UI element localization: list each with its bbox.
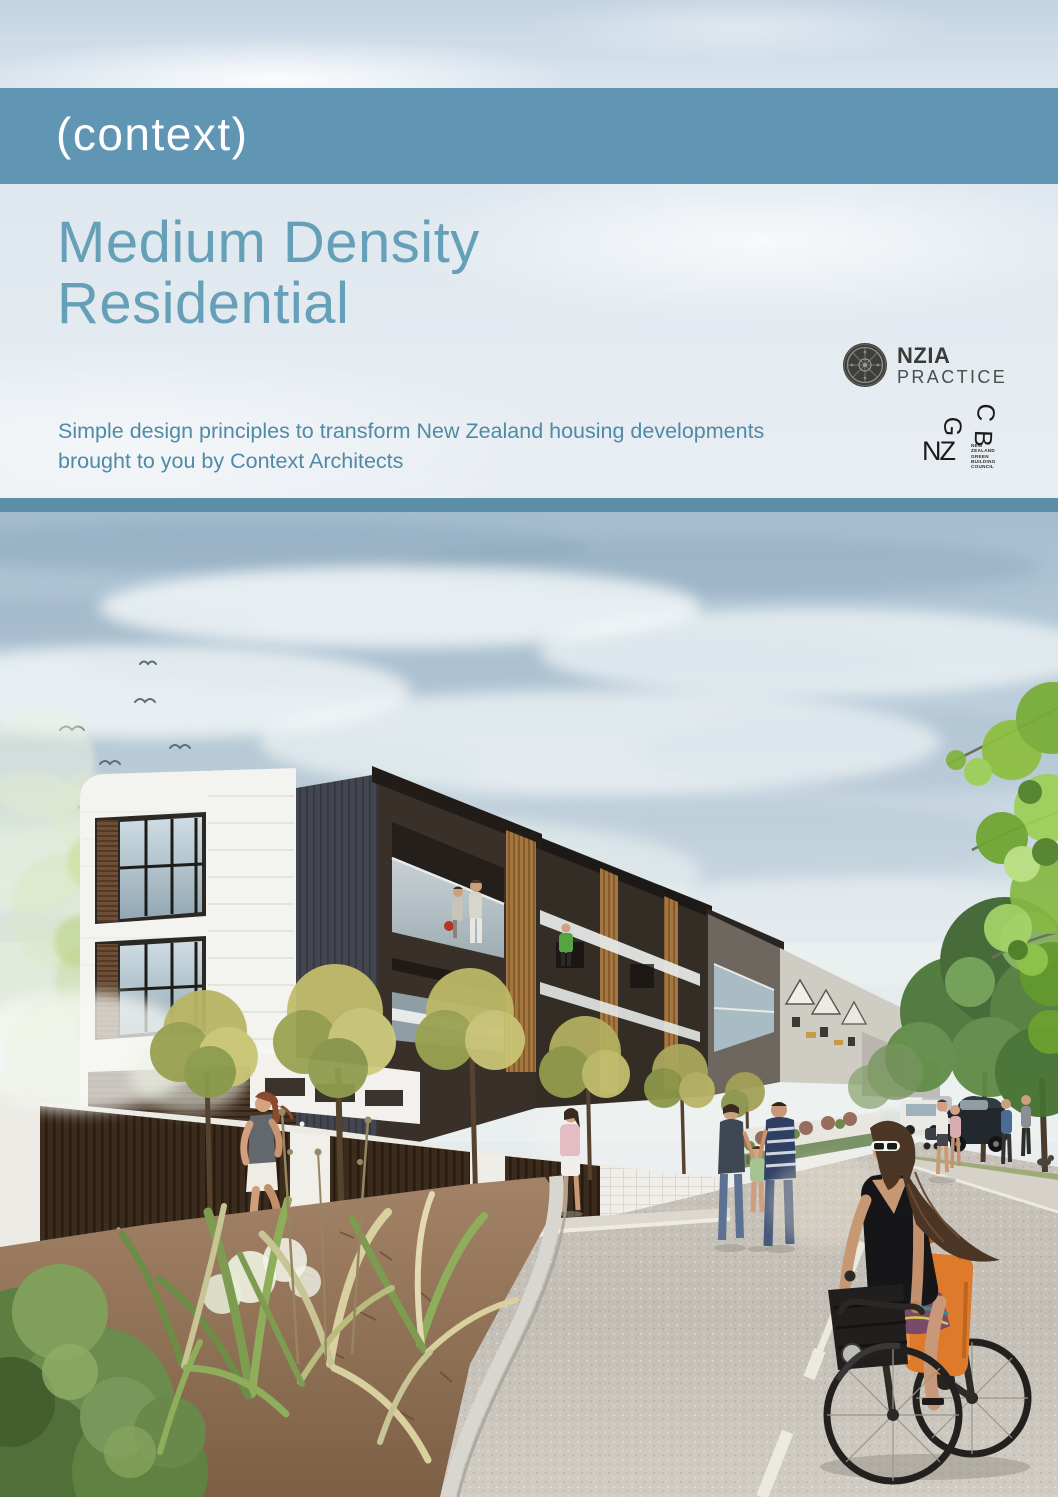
subtitle: Simple design principles to transform Ne… xyxy=(58,416,764,476)
title-block: Medium Density Residential Simple design… xyxy=(0,184,1058,498)
nzia-practice-label: PRACTICE xyxy=(897,367,1007,387)
title-line-2: Residential xyxy=(57,271,349,336)
title-line-1: Medium Density xyxy=(57,210,480,275)
subtitle-line-2: brought to you by Context Architects xyxy=(58,449,403,473)
page-title: Medium Density Residential xyxy=(57,212,480,334)
top-sky-strip xyxy=(0,0,1058,88)
nzgbc-letter-g: G xyxy=(937,416,967,436)
teal-separator-bar xyxy=(0,498,1058,512)
brand-band: (context) xyxy=(0,88,1058,184)
nzia-seal-icon xyxy=(842,342,888,388)
nzia-practice-logo: NZIA PRACTICE xyxy=(842,342,1007,388)
nzia-name: NZIA xyxy=(897,344,1007,367)
nzgbc-letter-c: C xyxy=(970,402,1001,423)
subtitle-line-1: Simple design principles to transform Ne… xyxy=(58,419,764,443)
nzgbc-letters-nz: NZ xyxy=(922,436,954,467)
nzgbc-small-text: NEW ZEALAND GREEN BUILDING COUNCIL xyxy=(971,443,996,469)
brochure-cover: (context) Medium Density Residential Sim… xyxy=(0,0,1058,1497)
street-render-illustration xyxy=(0,512,1058,1497)
hero-photo xyxy=(0,512,1058,1497)
context-logo: (context) xyxy=(56,107,248,161)
nzia-wordmark: NZIA PRACTICE xyxy=(897,344,1007,387)
nzgbc-logo: G C B NZ NEW ZEALAND GREEN BUILDING COUN… xyxy=(922,400,1008,476)
